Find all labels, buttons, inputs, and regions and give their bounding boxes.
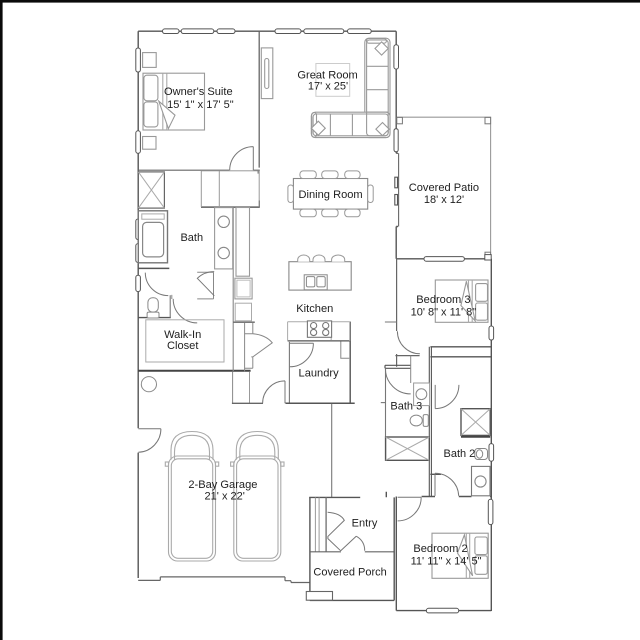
svg-text:Closet: Closet bbox=[167, 340, 198, 352]
svg-text:Covered Patio: Covered Patio bbox=[409, 182, 479, 194]
svg-text:Bath 2: Bath 2 bbox=[443, 448, 475, 460]
svg-text:Bath: Bath bbox=[180, 232, 203, 244]
svg-text:10' 8" x 11' 8": 10' 8" x 11' 8" bbox=[411, 307, 477, 319]
svg-text:18' x 12': 18' x 12' bbox=[424, 194, 464, 206]
svg-text:Owner's Suite: Owner's Suite bbox=[164, 86, 233, 98]
svg-text:17' x 25': 17' x 25' bbox=[308, 81, 348, 93]
svg-text:11' 11" x 14' 5": 11' 11" x 14' 5" bbox=[411, 556, 482, 568]
svg-text:15' 1" x 17' 5": 15' 1" x 17' 5" bbox=[167, 99, 234, 111]
svg-text:Kitchen: Kitchen bbox=[296, 303, 333, 315]
svg-text:Bath 3: Bath 3 bbox=[390, 400, 422, 412]
svg-text:Dining Room: Dining Room bbox=[299, 189, 363, 201]
svg-text:Laundry: Laundry bbox=[299, 368, 340, 380]
svg-text:Bedroom 3: Bedroom 3 bbox=[416, 294, 470, 306]
svg-text:Entry: Entry bbox=[352, 518, 378, 530]
svg-text:21' x 22': 21' x 22' bbox=[205, 490, 245, 502]
svg-text:2-Bay Garage: 2-Bay Garage bbox=[188, 479, 257, 491]
svg-text:Bedroom 2: Bedroom 2 bbox=[413, 543, 467, 555]
svg-text:Covered Porch: Covered Porch bbox=[313, 566, 386, 578]
